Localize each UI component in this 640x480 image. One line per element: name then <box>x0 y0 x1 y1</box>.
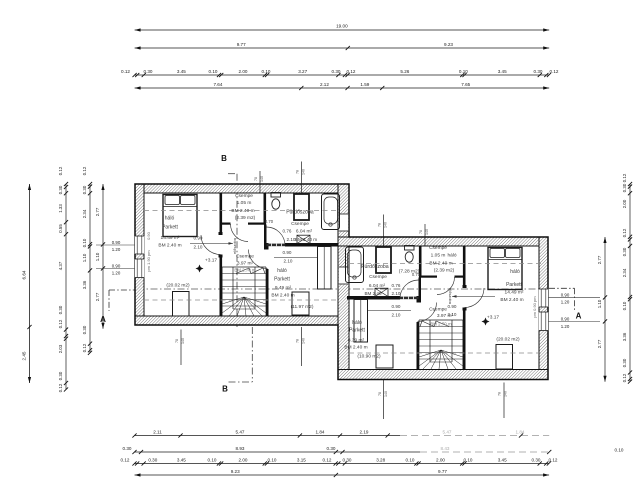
svg-text:+3.17: +3.17 <box>205 258 217 264</box>
svg-text:8.93: 8.93 <box>236 446 245 451</box>
svg-text:2.34: 2.34 <box>82 209 87 218</box>
svg-text:5.47: 5.47 <box>443 430 452 435</box>
svg-text:0.30: 0.30 <box>58 185 63 194</box>
svg-text:A: A <box>576 312 582 321</box>
svg-text:1.05 m: 1.05 m <box>431 253 446 259</box>
svg-text:0.12: 0.12 <box>82 166 87 175</box>
svg-text:78: 78 <box>175 339 179 343</box>
svg-text:háló: háló <box>277 268 287 274</box>
svg-text:9.49 m²: 9.49 m² <box>275 285 292 291</box>
svg-text:0.76: 0.76 <box>283 229 292 234</box>
svg-text:0.30: 0.30 <box>532 458 541 463</box>
svg-text:0.10: 0.10 <box>622 301 627 310</box>
svg-text:BM 2.40 m: BM 2.40 m <box>231 208 254 214</box>
svg-text:Csempe: Csempe <box>429 307 447 313</box>
svg-text:9.77: 9.77 <box>237 42 246 47</box>
svg-text:háló: háló <box>165 216 175 222</box>
svg-text:BM 2.70 m: BM 2.70 m <box>234 268 256 273</box>
svg-text:0.12: 0.12 <box>550 69 559 74</box>
svg-text:2.11: 2.11 <box>153 430 162 435</box>
svg-text:4.37: 4.37 <box>58 261 63 270</box>
svg-text:0.30: 0.30 <box>82 185 87 194</box>
svg-text:Parkett: Parkett <box>506 282 522 288</box>
svg-text:2.00: 2.00 <box>622 199 627 208</box>
svg-text:2.03: 2.03 <box>58 344 63 353</box>
svg-text:6.04 m²: 6.04 m² <box>296 229 313 235</box>
svg-text:0.12: 0.12 <box>622 173 627 182</box>
svg-text:3.45: 3.45 <box>498 458 507 463</box>
svg-text:0.90: 0.90 <box>392 304 401 309</box>
svg-text:7.64: 7.64 <box>213 82 222 87</box>
svg-text:1.84: 1.84 <box>516 430 525 435</box>
svg-text:2.34: 2.34 <box>622 268 627 277</box>
svg-text:0.10: 0.10 <box>459 69 468 74</box>
svg-text:BM 2.40 m: BM 2.40 m <box>295 237 317 242</box>
svg-text:140: 140 <box>504 391 508 397</box>
svg-text:2.77: 2.77 <box>95 292 100 301</box>
svg-text:Parkett: Parkett <box>274 277 290 283</box>
svg-text:0.30: 0.30 <box>58 305 63 314</box>
svg-text:0.12: 0.12 <box>121 458 130 463</box>
svg-text:(20.02 m2): (20.02 m2) <box>166 283 190 289</box>
svg-text:(2.39 m2): (2.39 m2) <box>434 268 455 274</box>
svg-text:14.49 m²: 14.49 m² <box>505 290 524 296</box>
svg-text:2.45: 2.45 <box>22 351 27 360</box>
svg-text:0.12: 0.12 <box>82 343 87 352</box>
svg-text:háló: háló <box>352 320 362 326</box>
svg-text:1.20: 1.20 <box>112 271 121 276</box>
svg-text:0.12: 0.12 <box>323 458 332 463</box>
svg-text:0.55: 0.55 <box>58 224 63 233</box>
svg-text:78: 78 <box>254 177 258 181</box>
svg-text:8.39 m²: 8.39 m² <box>348 338 365 344</box>
svg-text:0.90: 0.90 <box>112 264 121 269</box>
svg-text:BM 2.70 m: BM 2.70 m <box>430 322 452 327</box>
svg-text:2.10: 2.10 <box>194 245 203 250</box>
svg-text:0.12: 0.12 <box>58 166 63 175</box>
svg-text:140: 140 <box>384 391 388 397</box>
svg-text:8.43: 8.43 <box>441 446 450 451</box>
svg-text:0.30: 0.30 <box>148 458 157 463</box>
svg-text:Parkett: Parkett <box>162 225 178 231</box>
svg-text:9.23: 9.23 <box>231 469 240 474</box>
svg-text:(2.39 m2): (2.39 m2) <box>235 215 256 221</box>
svg-text:A: A <box>100 315 106 324</box>
svg-text:140: 140 <box>260 176 264 182</box>
svg-text:78: 78 <box>378 392 382 396</box>
svg-text:0.12: 0.12 <box>58 383 63 392</box>
svg-text:2.00: 2.00 <box>239 69 248 74</box>
svg-text:1.20: 1.20 <box>561 300 570 305</box>
svg-text:1.05 m: 1.05 m <box>237 200 252 206</box>
svg-text:2.77: 2.77 <box>597 255 602 264</box>
svg-text:0.12: 0.12 <box>622 373 627 382</box>
svg-text:3.45: 3.45 <box>498 69 507 74</box>
svg-text:0.30: 0.30 <box>327 446 336 451</box>
svg-text:2.00: 2.00 <box>239 458 248 463</box>
svg-text:2.10: 2.10 <box>392 313 401 318</box>
svg-text:14.49 m²: 14.49 m² <box>161 235 180 241</box>
svg-text:0.90: 0.90 <box>561 292 570 297</box>
svg-text:6.04 m²: 6.04 m² <box>369 283 386 289</box>
svg-text:0.90: 0.90 <box>561 317 570 322</box>
svg-text:0.30: 0.30 <box>622 358 627 367</box>
svg-text:BM 2.40 m: BM 2.40 m <box>500 297 523 303</box>
svg-text:0.90: 0.90 <box>283 250 292 255</box>
svg-text:0.70: 0.70 <box>265 219 274 224</box>
svg-text:0.12: 0.12 <box>622 228 627 237</box>
svg-text:0.30: 0.30 <box>123 446 132 451</box>
svg-text:1.10: 1.10 <box>95 252 100 261</box>
svg-text:7.65: 7.65 <box>461 82 470 87</box>
svg-text:1.20: 1.20 <box>112 247 121 252</box>
svg-text:5.47: 5.47 <box>236 430 245 435</box>
svg-text:78: 78 <box>295 339 299 343</box>
svg-text:Csempe: Csempe <box>235 193 253 199</box>
svg-text:6.64: 6.64 <box>22 270 27 279</box>
svg-text:0.10: 0.10 <box>208 458 217 463</box>
svg-text:(10.90 m2): (10.90 m2) <box>357 354 381 360</box>
svg-text:Csempe: Csempe <box>291 221 309 227</box>
svg-text:0.10: 0.10 <box>464 458 473 463</box>
svg-text:9.23: 9.23 <box>444 42 453 47</box>
svg-text:2.19: 2.19 <box>360 430 369 435</box>
svg-text:(11.97 m2): (11.97 m2) <box>291 304 314 310</box>
svg-text:3.36: 3.36 <box>622 332 627 341</box>
svg-text:Csempe: Csempe <box>369 274 387 280</box>
svg-text:0.10: 0.10 <box>615 448 624 453</box>
svg-text:0.30: 0.30 <box>534 69 543 74</box>
svg-text:1.84: 1.84 <box>316 430 325 435</box>
svg-text:0.90: 0.90 <box>146 231 151 240</box>
svg-text:3.45: 3.45 <box>177 69 186 74</box>
svg-text:előszoba: előszoba <box>448 288 453 305</box>
svg-text:2.77: 2.77 <box>597 339 602 348</box>
svg-text:pm 0.90 pm: pm 0.90 pm <box>532 296 537 318</box>
svg-text:2.10: 2.10 <box>284 259 293 264</box>
svg-text:előszoba: előszoba <box>232 237 237 254</box>
svg-text:140: 140 <box>302 338 306 344</box>
svg-text:1.10: 1.10 <box>82 253 87 262</box>
svg-text:0.70: 0.70 <box>412 272 421 277</box>
svg-text:háló: háló <box>510 269 520 275</box>
svg-text:Fürdőszoba: Fürdőszoba <box>286 210 314 216</box>
svg-text:0.90: 0.90 <box>448 304 457 309</box>
svg-text:2.77: 2.77 <box>95 207 100 216</box>
svg-text:BM 2.40 m: BM 2.40 m <box>158 243 181 249</box>
svg-text:9.77: 9.77 <box>438 469 447 474</box>
svg-text:Fürdőszoba: Fürdőszoba <box>361 264 389 270</box>
svg-text:1.33: 1.33 <box>58 204 63 213</box>
svg-text:78: 78 <box>377 223 381 227</box>
svg-text:140: 140 <box>302 169 306 175</box>
svg-text:0.90: 0.90 <box>194 236 203 241</box>
svg-text:3.97 m²: 3.97 m² <box>237 261 254 267</box>
svg-text:B: B <box>221 154 227 163</box>
svg-text:háló: háló <box>447 253 456 259</box>
svg-text:2.10: 2.10 <box>392 291 401 296</box>
svg-text:3.28: 3.28 <box>376 458 385 463</box>
svg-text:0.10: 0.10 <box>406 458 415 463</box>
svg-text:B: B <box>222 385 228 394</box>
svg-text:Csempe: Csempe <box>429 245 447 251</box>
svg-text:78: 78 <box>295 170 299 174</box>
svg-text:78: 78 <box>419 230 423 234</box>
svg-text:3.45: 3.45 <box>177 458 186 463</box>
svg-text:BM 2.40 m: BM 2.40 m <box>429 261 452 267</box>
svg-text:0.10: 0.10 <box>268 458 277 463</box>
svg-text:0.30: 0.30 <box>144 69 153 74</box>
svg-text:78: 78 <box>497 392 501 396</box>
svg-text:Parkett: Parkett <box>349 328 365 334</box>
svg-text:0.30: 0.30 <box>343 458 352 463</box>
svg-text:0.10: 0.10 <box>262 69 271 74</box>
svg-text:0.76: 0.76 <box>392 283 401 288</box>
svg-text:0.10: 0.10 <box>82 238 87 247</box>
svg-text:5.26: 5.26 <box>400 69 409 74</box>
svg-text:2.12: 2.12 <box>320 82 329 87</box>
svg-text:BM 2.40 m: BM 2.40 m <box>271 293 294 299</box>
svg-text:3.36: 3.36 <box>82 280 87 289</box>
svg-text:2.00: 2.00 <box>436 458 445 463</box>
svg-text:0.12: 0.12 <box>549 458 558 463</box>
svg-text:0.30: 0.30 <box>332 69 341 74</box>
svg-text:0.12: 0.12 <box>121 69 130 74</box>
svg-text:1.20: 1.20 <box>561 324 570 329</box>
svg-text:1.10: 1.10 <box>597 299 602 308</box>
svg-text:0.30: 0.30 <box>622 247 627 256</box>
svg-text:140: 140 <box>425 229 429 235</box>
svg-text:BM 2.40: BM 2.40 <box>364 291 382 296</box>
svg-text:0.30: 0.30 <box>622 183 627 192</box>
svg-text:0.30: 0.30 <box>82 325 87 334</box>
svg-text:3.15: 3.15 <box>297 458 306 463</box>
svg-text:1.59: 1.59 <box>360 82 369 87</box>
svg-text:0.30: 0.30 <box>58 371 63 380</box>
svg-text:140: 140 <box>384 222 388 228</box>
svg-text:3.27: 3.27 <box>298 69 307 74</box>
svg-text:19.00: 19.00 <box>336 24 348 29</box>
svg-text:pm 1.90 pm: pm 1.90 pm <box>146 250 151 272</box>
svg-text:Csempe: Csempe <box>236 254 254 260</box>
svg-text:(20.02 m2): (20.02 m2) <box>496 337 520 343</box>
svg-text:140: 140 <box>181 338 185 344</box>
svg-text:0.12: 0.12 <box>347 69 356 74</box>
svg-text:+3.17: +3.17 <box>487 315 499 321</box>
svg-text:BM 2.40 m: BM 2.40 m <box>344 345 367 351</box>
svg-text:3.97 m²: 3.97 m² <box>437 313 454 319</box>
svg-text:0.12: 0.12 <box>58 319 63 328</box>
svg-text:0.10: 0.10 <box>209 69 218 74</box>
svg-text:0.90: 0.90 <box>112 240 121 245</box>
